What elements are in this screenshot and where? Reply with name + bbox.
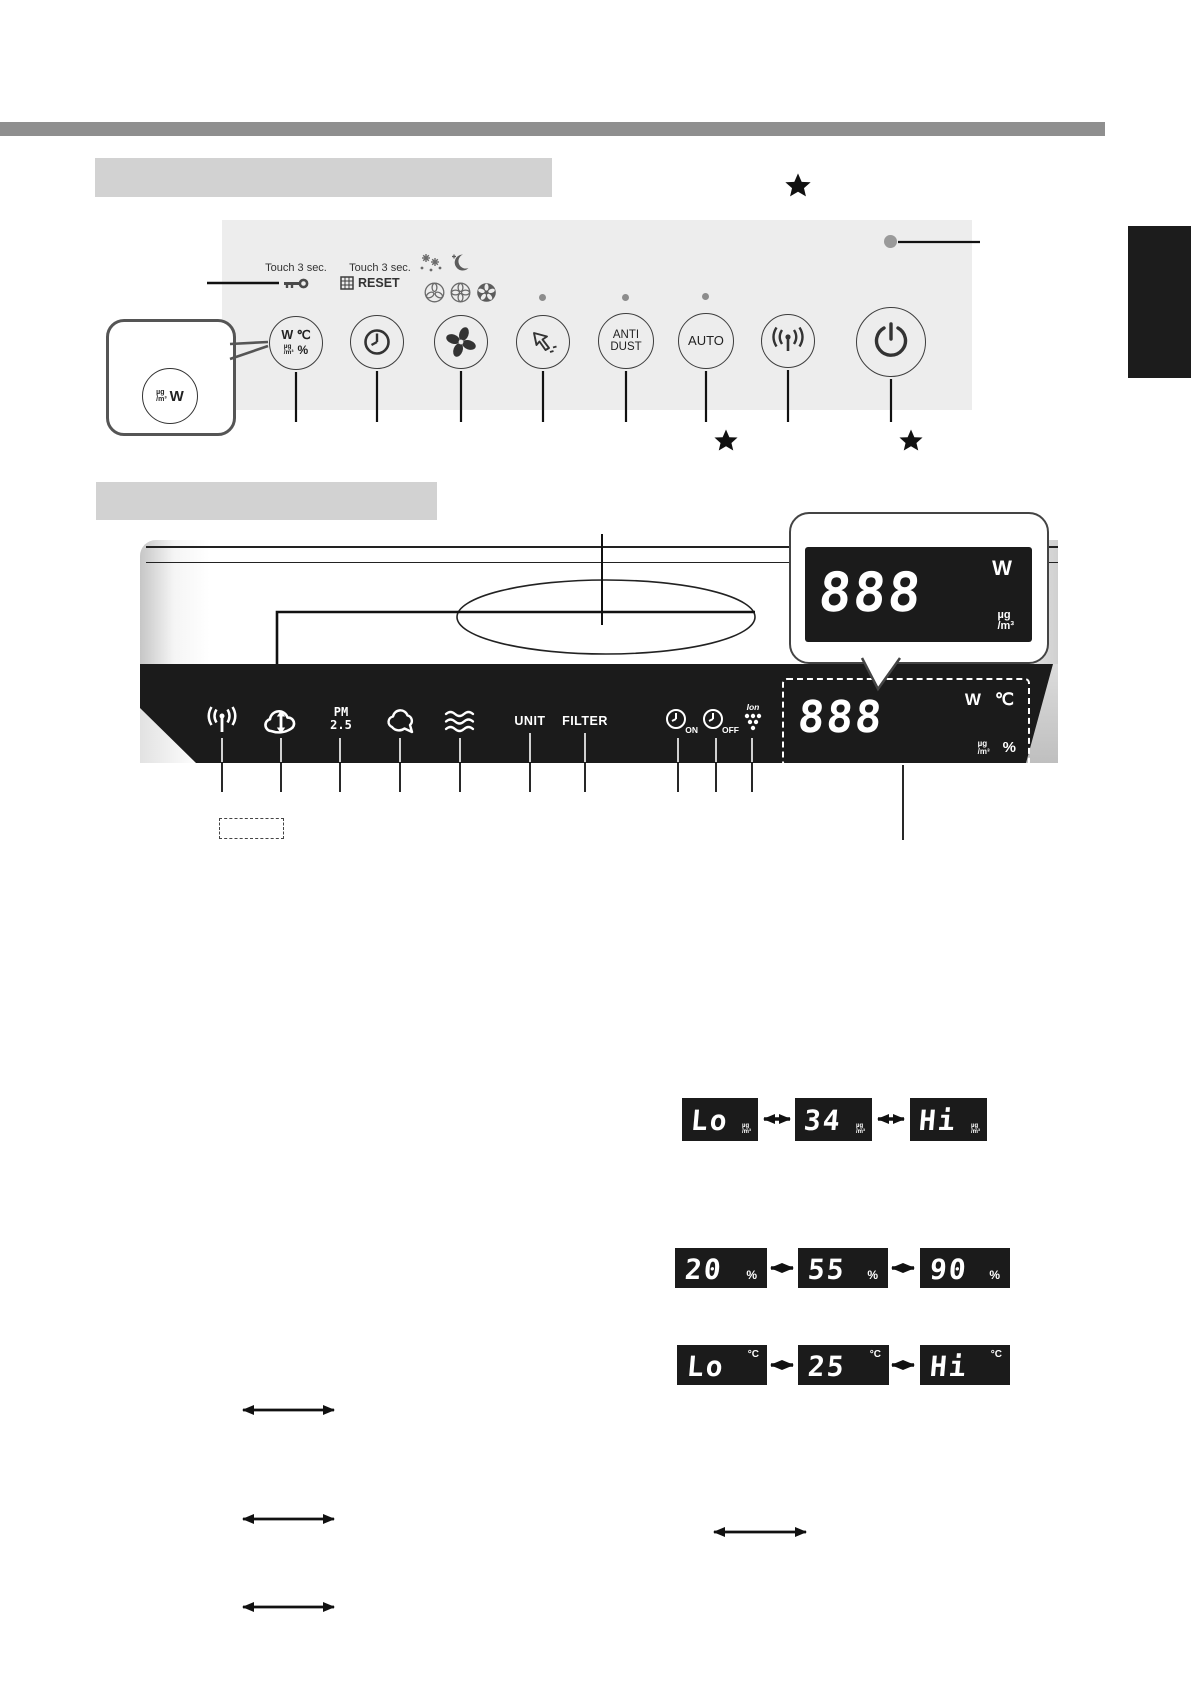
section-title-box-controls [95,158,552,197]
star-marker-auto [714,429,737,450]
control-panel [222,220,972,410]
cloud-sync-indicator-icon [262,706,300,738]
wifi-icon [770,326,806,356]
fan-icon [444,325,478,359]
callout-display-value: 888 [816,561,925,624]
clock-icon [361,326,393,358]
wireless-button[interactable] [761,314,815,368]
led-example-dust-mid: 34 µg/m³ [795,1098,872,1141]
led-example-temp-high: Hi °C [920,1345,1010,1385]
mode-led-airflow [539,294,546,301]
pollen-icon [418,252,446,274]
section-title-box-display [96,482,437,520]
ion-dots-icon [740,712,766,732]
fan-low-icon [424,282,445,303]
anti-dust-label-2: DUST [610,341,641,353]
display-window-ellipse [455,578,757,656]
led-example-temp-low: Lo °C [677,1345,767,1385]
star-marker-power [899,429,922,450]
star-marker-top [785,173,810,196]
led-example-humidity-high: 90 % [920,1248,1010,1288]
display-select-label-bottom: µg/m³ % [284,344,308,357]
auto-button[interactable]: AUTO [678,313,734,369]
led-example-dust-high: Hi µg/m³ [910,1098,987,1141]
timer-button[interactable] [350,315,404,369]
auto-label: AUTO [688,334,724,348]
main-display-area: 888 W℃ µg/m³ % [782,678,1030,767]
fan-medium-icon [450,282,471,303]
callout-bubble-sensor: µg/m³ W [106,319,236,436]
mode-led-auto [702,293,709,300]
main-display-units-bottom: µg/m³ % [978,739,1016,756]
fan-high-icon [476,282,497,303]
display-select-button[interactable]: W ℃ µg/m³ % [269,316,323,370]
wifi-label-dashed-box [219,818,284,839]
led-example-humidity-low: 20 % [675,1248,767,1288]
unit-indicator-label: UNIT [505,714,555,728]
airflow-button[interactable] [516,315,570,369]
main-display-units-top: W℃ [965,690,1014,710]
main-display-value: 888 [796,692,886,743]
reset-label: RESET [358,276,400,290]
timer-on-indicator: ON [664,707,694,737]
led-example-temp-mid: 25 °C [798,1345,889,1385]
fan-speed-button[interactable] [434,315,488,369]
power-button[interactable] [856,307,926,377]
airflow-wave-indicator-icon [443,709,479,735]
led-row-arrows [764,1119,914,1365]
led-example-dust-low: Lo µg/m³ [682,1098,758,1141]
callout-unit-w: W [992,557,1012,581]
callout-display: 888 W µg/m³ [805,547,1032,642]
fan-speed-icons [424,282,497,303]
display-select-label-top: W ℃ [281,329,310,342]
touch-3sec-label-right: Touch 3 sec. [334,262,426,274]
reset-grid-icon [340,276,354,290]
ion-indicator: Ion [740,702,766,732]
anti-dust-button[interactable]: ANTI DUST [598,313,654,369]
timer-off-indicator: OFF [701,707,731,737]
wifi-indicator-icon [205,704,239,738]
range-arrows [243,1410,806,1607]
anti-dust-label-1: ANTI [613,329,639,341]
led-example-humidity-mid: 55 % [798,1248,888,1288]
manual-page: Touch 3 sec. Touch 3 sec. RESET [0,0,1191,1684]
sensor-display-w: W [170,388,184,405]
sensor-display-button[interactable]: µg/m³ W [142,368,198,424]
mode-led-antidust [622,294,629,301]
filter-indicator-label: FILTER [556,714,614,728]
power-led-indicator [884,235,897,248]
airflow-arrow-icon [527,326,559,358]
touch-3sec-label-left: Touch 3 sec. [250,262,342,274]
key-icon [282,276,309,291]
reset-annotation: RESET [340,276,400,290]
header-bar [0,122,1105,136]
odor-indicator-icon [384,706,418,738]
power-icon [870,320,912,364]
callout-unit-ugm3: µg/m³ [998,610,1015,632]
sleep-moon-icon [450,253,470,273]
strip-leader-black-segments [222,763,903,840]
display-callout-bubble: 888 W µg/m³ [789,512,1049,664]
page-edge-tab [1128,226,1191,378]
pm25-indicator: PM 2.5 [326,706,356,732]
